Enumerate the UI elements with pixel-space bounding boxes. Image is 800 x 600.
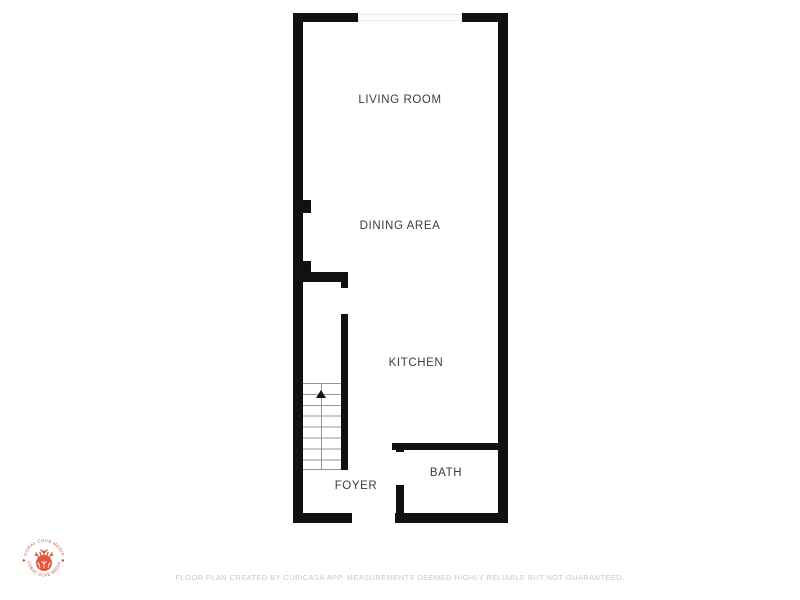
window-top <box>358 14 462 21</box>
pilaster-upper <box>303 200 311 213</box>
room-label-foyer: FOYER <box>335 480 378 492</box>
room-label-living-room: LIVING ROOM <box>358 94 441 106</box>
stair-enclosure-inner-wall <box>341 314 348 470</box>
room-label-dining-area: DINING AREA <box>360 220 441 232</box>
wall-left <box>293 13 303 523</box>
bath-door-opening <box>396 452 404 485</box>
logo-separator-right-icon: ◆ <box>61 558 65 563</box>
stair-door-opening <box>341 288 348 314</box>
footer-disclaimer: FLOOR PLAN CREATED BY CUBICASA APP. MEAS… <box>0 573 800 582</box>
stair-enclosure-top-wall <box>303 272 348 282</box>
logo-separator-left-icon: ◆ <box>22 558 26 563</box>
wall-top-right-segment <box>462 13 508 22</box>
wall-bottom-right-segment <box>395 513 508 523</box>
stairs-up-arrow-icon <box>316 390 326 398</box>
front-door-opening <box>352 513 395 523</box>
floorplan-canvas: LIVING ROOM DINING AREA KITCHEN FOYER BA… <box>0 0 800 600</box>
bath-left-wall <box>396 485 404 513</box>
wall-bottom-left-segment <box>293 513 352 523</box>
wall-right <box>498 13 508 523</box>
staircase <box>303 383 341 470</box>
room-label-bath: BATH <box>430 467 462 479</box>
wall-top-left-segment <box>293 13 358 22</box>
bath-top-wall <box>392 443 498 450</box>
coral-icon <box>35 550 53 571</box>
room-label-kitchen: KITCHEN <box>389 357 444 369</box>
bath-left-wall-stub <box>396 443 404 452</box>
